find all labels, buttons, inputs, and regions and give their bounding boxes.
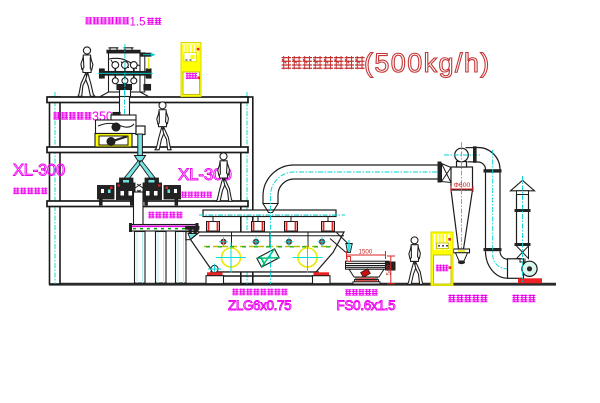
svg-text:FS0.6x1.5: FS0.6x1.5 [337, 298, 396, 313]
svg-text:ZLG6x0.75: ZLG6x0.75 [228, 298, 291, 313]
svg-text:XL-300: XL-300 [13, 162, 65, 180]
svg-text:540: 540 [386, 265, 393, 276]
svg-text:(500kg/h): (500kg/h) [364, 48, 491, 78]
svg-text:1500: 1500 [359, 249, 373, 256]
svg-text:1.5: 1.5 [130, 17, 146, 29]
svg-text:Φ600: Φ600 [454, 182, 471, 189]
